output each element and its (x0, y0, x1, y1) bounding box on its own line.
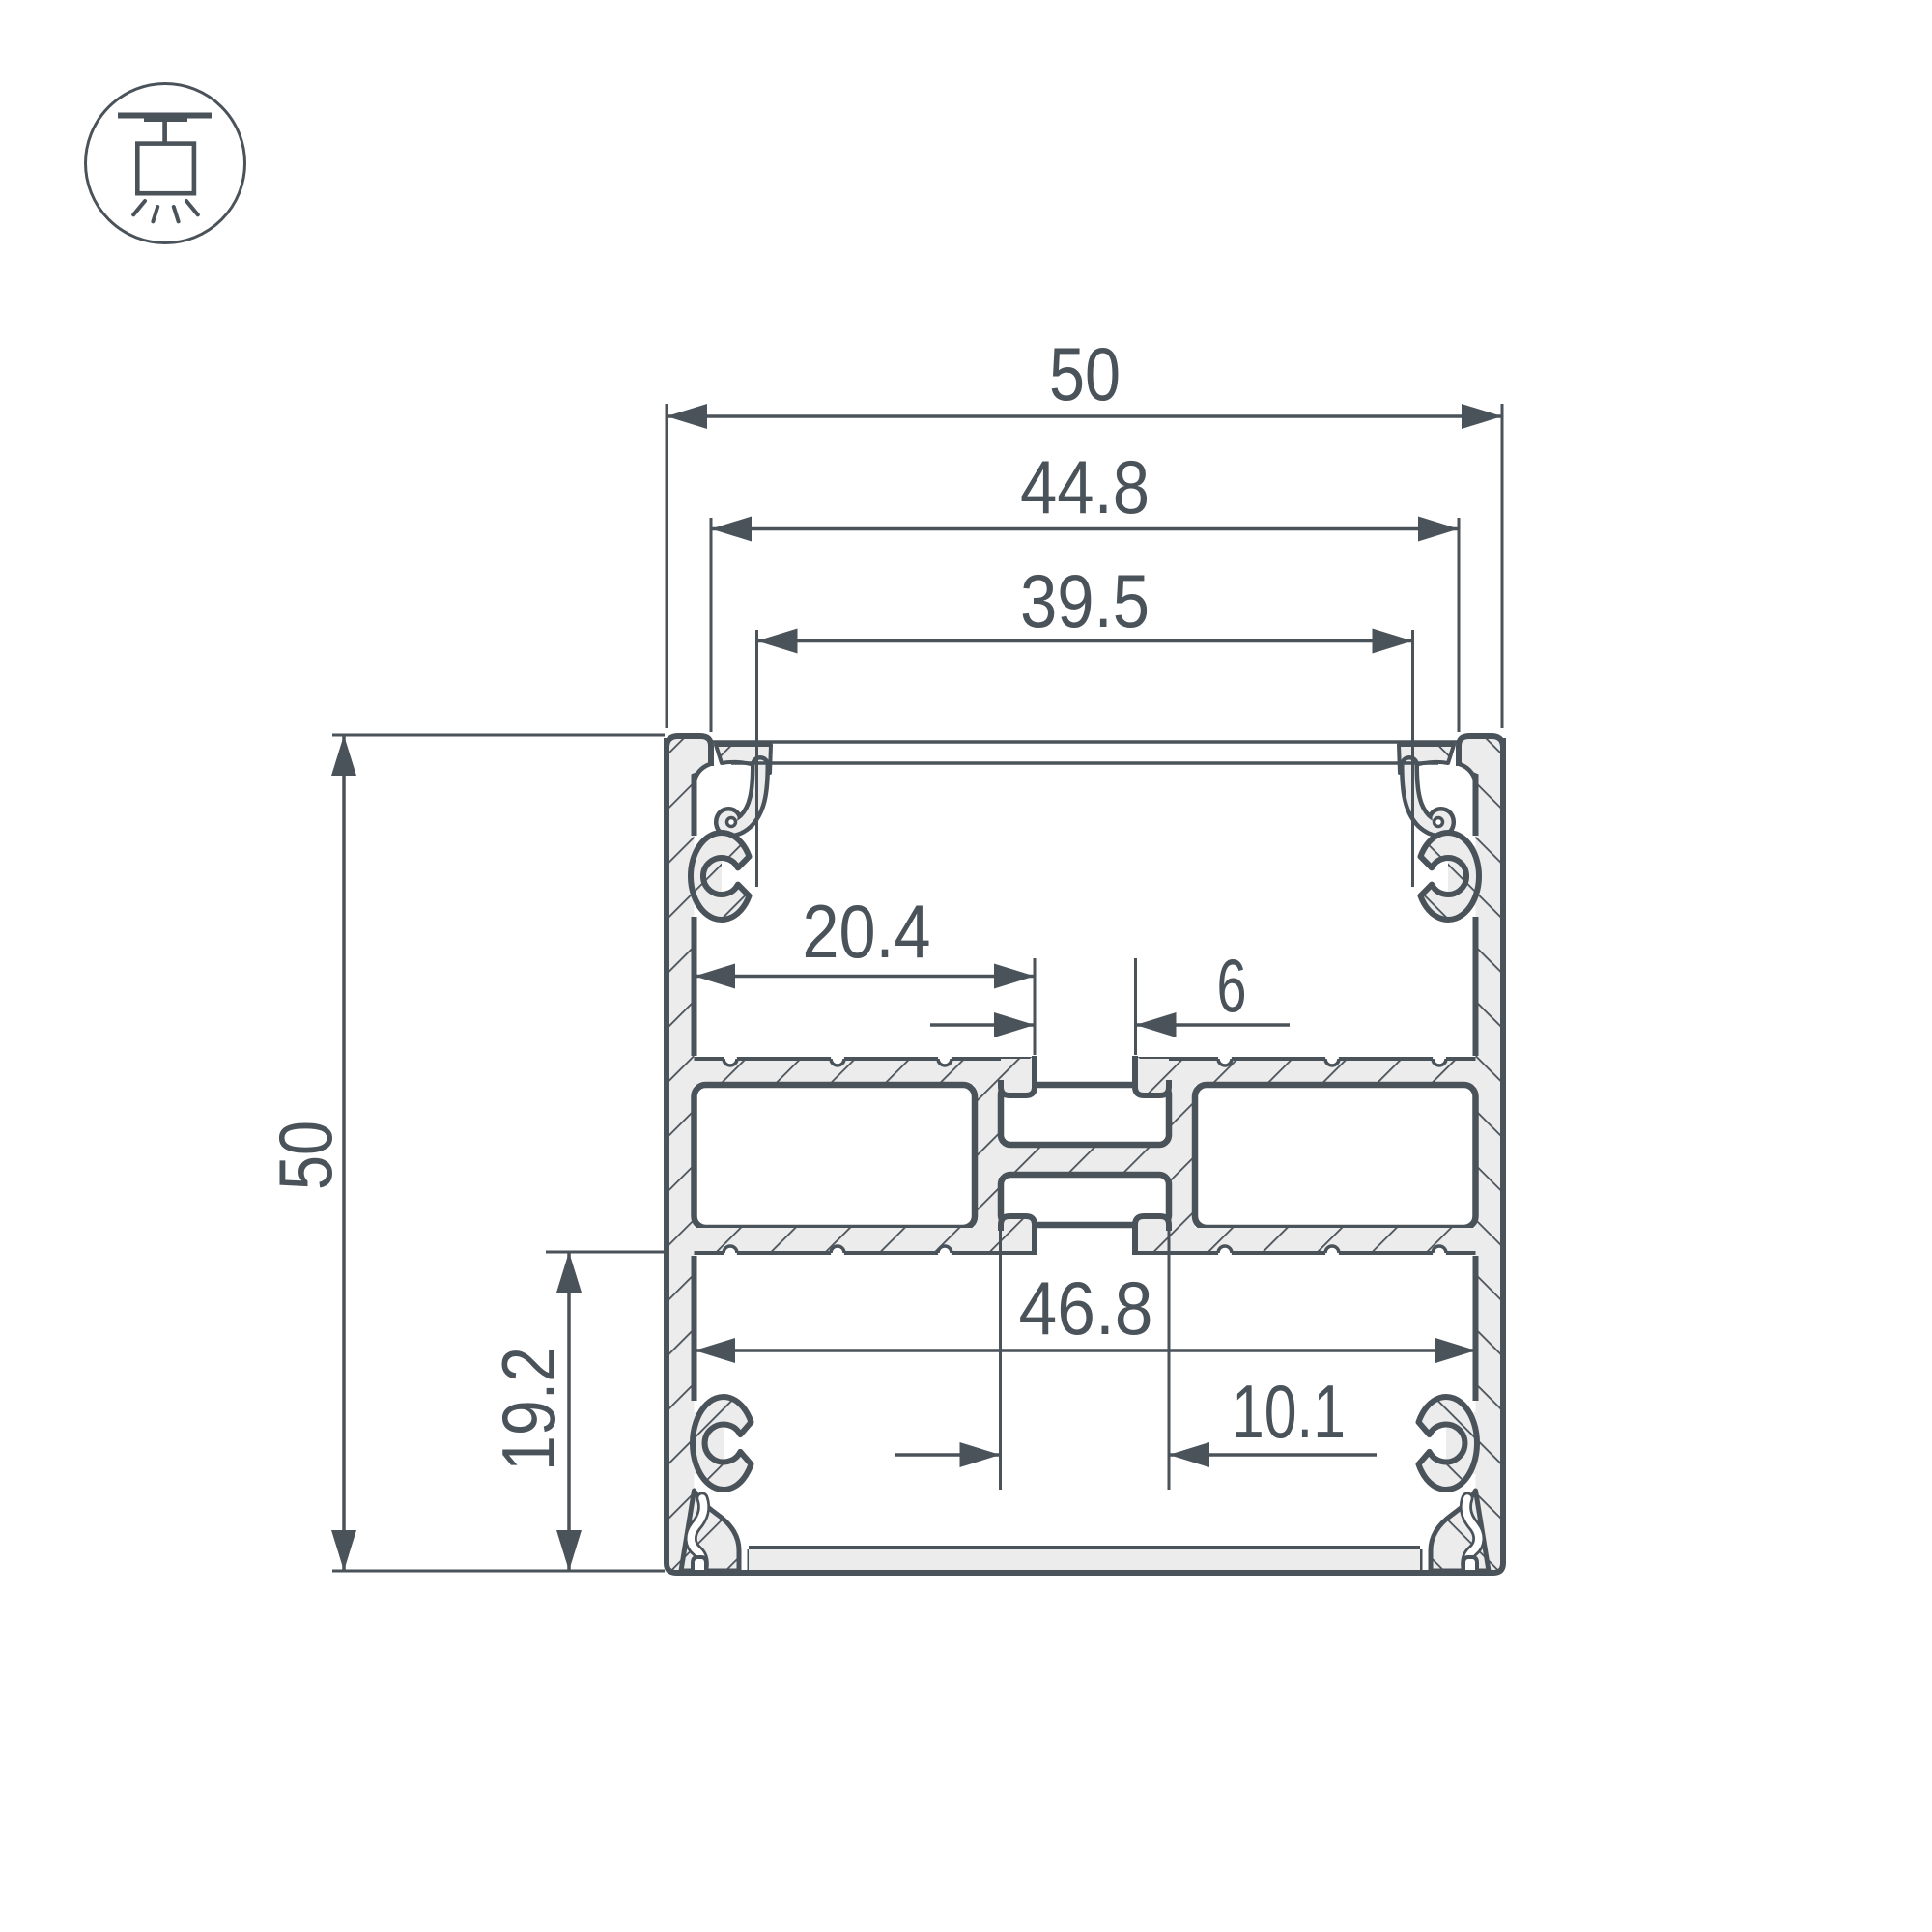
svg-text:50: 50 (1049, 331, 1121, 416)
svg-text:6: 6 (1217, 943, 1247, 1028)
svg-text:19.2: 19.2 (486, 1347, 571, 1471)
svg-text:10.1: 10.1 (1232, 1369, 1346, 1454)
svg-text:46.8: 46.8 (1019, 1265, 1153, 1350)
svg-text:44.8: 44.8 (1020, 444, 1150, 529)
svg-text:20.4: 20.4 (803, 889, 931, 974)
svg-text:50: 50 (263, 1121, 348, 1190)
svg-text:39.5: 39.5 (1020, 558, 1150, 643)
